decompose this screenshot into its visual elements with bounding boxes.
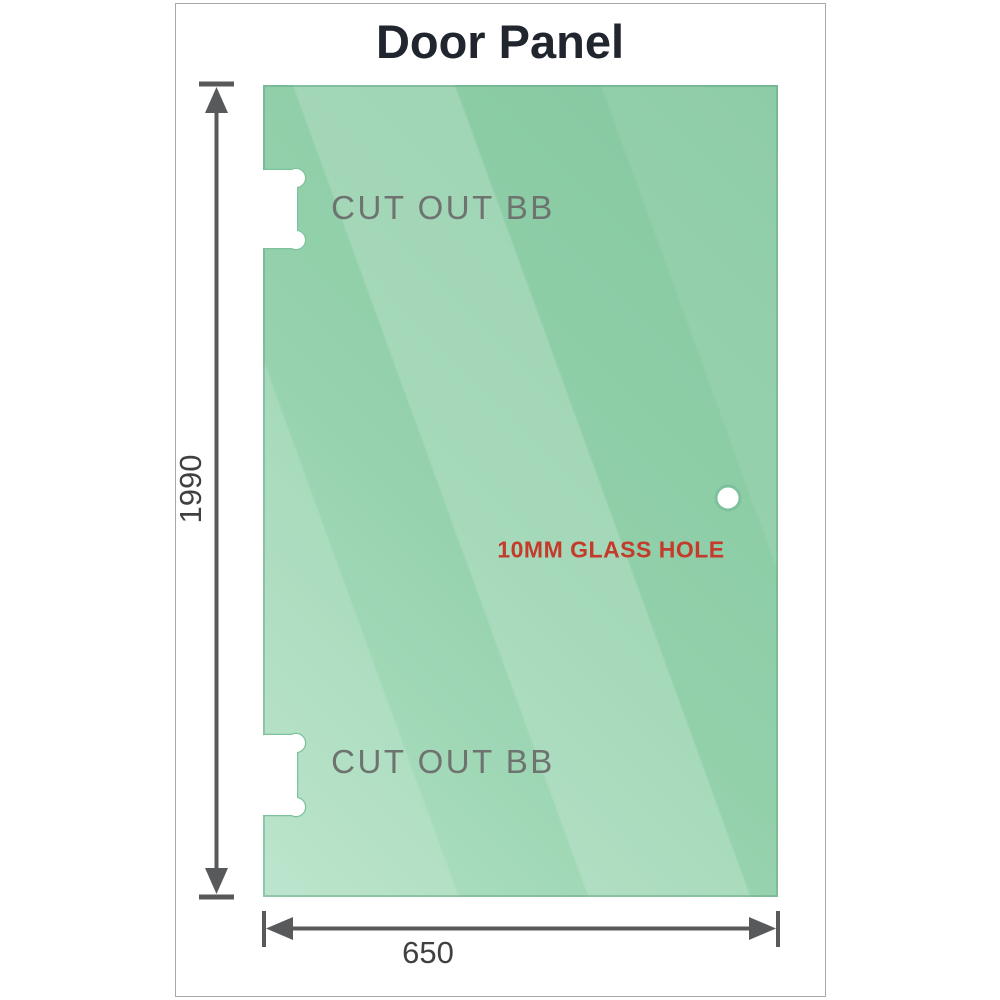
height-dimension-label: 1990 (173, 455, 209, 524)
cutout-top-label: CUT OUT BB (331, 189, 555, 227)
cutout-bottom-label: CUT OUT BB (331, 743, 555, 781)
door-panel-diagram: Door Panel (0, 0, 1000, 1000)
page-title: Door Panel (175, 14, 825, 69)
width-dimension-label: 650 (402, 935, 454, 971)
glass-hole-label: 10MM GLASS HOLE (497, 537, 724, 564)
hinge-cutout-top-icon (263, 169, 305, 249)
hinge-cutout-bottom-icon (263, 734, 305, 816)
glass-panel: CUT OUT BB CUT OUT BB 10MM GLASS HOLE (263, 85, 778, 897)
glass-hole-icon (716, 486, 740, 510)
